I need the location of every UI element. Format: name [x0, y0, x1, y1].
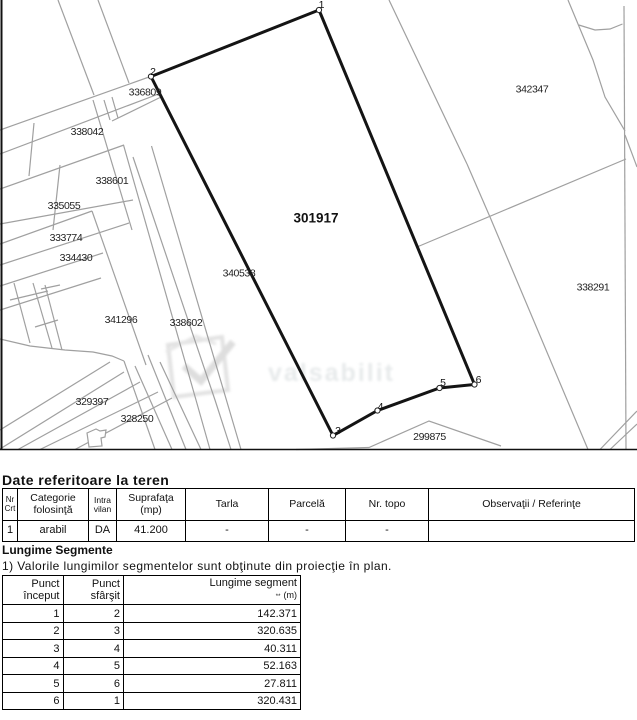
svg-text:2: 2 [150, 66, 156, 78]
svg-text:338602: 338602 [170, 317, 203, 329]
svg-text:329397: 329397 [76, 396, 109, 408]
svg-text:301917: 301917 [293, 211, 338, 226]
svg-text:338042: 338042 [71, 126, 104, 138]
svg-text:340538: 340538 [223, 268, 256, 280]
svg-text:3: 3 [335, 425, 341, 437]
svg-text:5: 5 [440, 377, 446, 389]
svg-text:338601: 338601 [96, 175, 129, 187]
svg-text:341296: 341296 [105, 314, 138, 326]
svg-text:4: 4 [378, 401, 384, 413]
svg-text:1: 1 [319, 0, 325, 11]
svg-text:335055: 335055 [48, 200, 81, 212]
svg-text:336809: 336809 [129, 87, 162, 99]
svg-text:342347: 342347 [516, 84, 549, 96]
svg-text:valsabilit: valsabilit [268, 359, 395, 387]
svg-text:6: 6 [476, 374, 482, 386]
svg-text:333774: 333774 [50, 232, 83, 244]
svg-text:334430: 334430 [60, 252, 93, 264]
svg-text:338291: 338291 [577, 282, 610, 294]
svg-text:328250: 328250 [121, 413, 154, 425]
svg-text:299875: 299875 [413, 431, 446, 443]
